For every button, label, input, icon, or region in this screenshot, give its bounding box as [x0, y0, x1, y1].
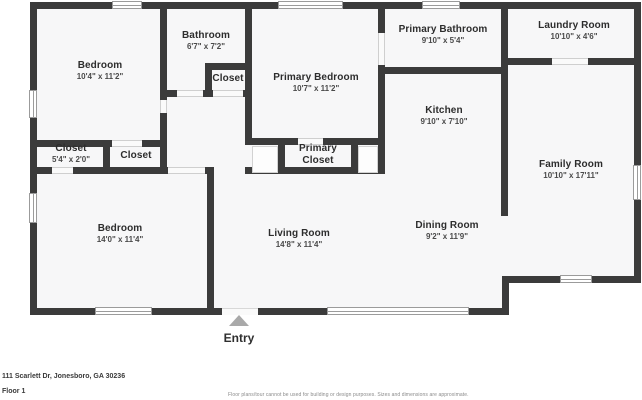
door-opening — [160, 100, 167, 113]
room-label-primary-bedroom: Primary Bedroom 10'7" x 11'2" — [273, 72, 358, 94]
door-opening — [168, 167, 205, 174]
room-name: Closet — [52, 143, 90, 155]
room-label-primary-closet: Primary Closet — [292, 143, 344, 167]
wall — [160, 140, 167, 174]
wall — [205, 63, 212, 97]
wall — [103, 140, 110, 174]
room-label-laundry-room: Laundry Room 10'10" x 4'6" — [538, 20, 610, 42]
room-name: Bedroom — [97, 223, 144, 235]
room-name: Bedroom — [77, 60, 124, 72]
entry-arrow-icon — [229, 315, 249, 326]
door-opening — [358, 146, 378, 173]
room-name: Family Room — [539, 159, 603, 171]
room-label-bedroom-2: Bedroom 14'0" x 11'4" — [97, 223, 144, 245]
window — [29, 90, 37, 118]
room-name: Living Room — [268, 228, 330, 240]
room-dimensions: 5'4" x 2'0" — [52, 155, 90, 165]
door-opening — [112, 140, 142, 147]
door-opening — [552, 58, 588, 65]
room-label-bathroom: Bathroom 6'7" x 7'2" — [182, 30, 230, 52]
wall — [378, 6, 385, 174]
room-name: Primary Bedroom — [273, 72, 358, 84]
disclaimer-text: Floor plans/tour cannot be used for buil… — [228, 392, 469, 398]
window — [112, 1, 142, 9]
room-dimensions: 10'10" x 17'11" — [539, 171, 603, 181]
room-name: Kitchen — [421, 105, 468, 117]
wall — [160, 6, 167, 147]
window — [278, 1, 343, 9]
room-name: Laundry Room — [538, 20, 610, 32]
wall — [30, 2, 37, 315]
wall — [30, 140, 167, 147]
floor-number: Floor 1 — [2, 388, 25, 395]
room-dimensions: 9'2" x 11'9" — [415, 232, 478, 242]
room-dimensions: 14'8" x 11'4" — [268, 240, 330, 250]
room-label-closet-top: Closet — [212, 73, 243, 85]
room-name: Dining Room — [415, 220, 478, 232]
window — [29, 193, 37, 223]
window — [422, 1, 460, 9]
entry-door-opening — [222, 308, 258, 315]
room-label-closet-mid: Closet — [120, 150, 151, 162]
wall — [207, 167, 214, 315]
room-name: Bathroom — [182, 30, 230, 42]
door-opening — [252, 146, 278, 173]
wall — [351, 145, 358, 174]
room-dimensions: 9'10" x 7'10" — [421, 117, 468, 127]
room-name: Primary Bathroom — [399, 24, 488, 36]
room-dimensions: 10'4" x 11'2" — [77, 72, 124, 82]
room-label-dining-room: Dining Room 9'2" x 11'9" — [415, 220, 478, 242]
room-dimensions: 6'7" x 7'2" — [182, 42, 230, 52]
room-label-family-room: Family Room 10'10" x 17'11" — [539, 159, 603, 181]
room-dimensions: 9'10" x 5'4" — [399, 36, 488, 46]
window — [327, 307, 469, 315]
wall — [634, 2, 641, 283]
room-dimensions: 10'7" x 11'2" — [273, 84, 358, 94]
door-opening — [52, 167, 73, 174]
window — [560, 275, 592, 283]
room-name: Closet — [120, 150, 151, 162]
door-opening — [177, 90, 203, 97]
wall — [501, 2, 508, 216]
window — [95, 307, 152, 315]
wall — [378, 67, 508, 74]
entry-label: Entry — [224, 331, 255, 345]
room-label-living-room: Living Room 14'8" x 11'4" — [268, 228, 330, 250]
room-label-closet-left: Closet 5'4" x 2'0" — [52, 143, 90, 165]
window — [633, 165, 641, 200]
room-dimensions: 14'0" x 11'4" — [97, 235, 144, 245]
room-label-kitchen: Kitchen 9'10" x 7'10" — [421, 105, 468, 127]
room-dimensions: 10'10" x 4'6" — [538, 32, 610, 42]
wall — [245, 6, 252, 145]
door-opening — [378, 33, 385, 65]
door-opening — [213, 90, 243, 97]
room-name: Closet — [212, 73, 243, 85]
wall — [278, 145, 285, 174]
property-address: 111 Scarlett Dr, Jonesboro, GA 30236 — [2, 373, 125, 380]
room-label-primary-bathroom: Primary Bathroom 9'10" x 5'4" — [399, 24, 488, 46]
room-name: Primary Closet — [292, 143, 344, 167]
floor-plan: Bedroom 10'4" x 11'2" Bathroom 6'7" x 7'… — [0, 0, 642, 400]
room-label-bedroom-1: Bedroom 10'4" x 11'2" — [77, 60, 124, 82]
